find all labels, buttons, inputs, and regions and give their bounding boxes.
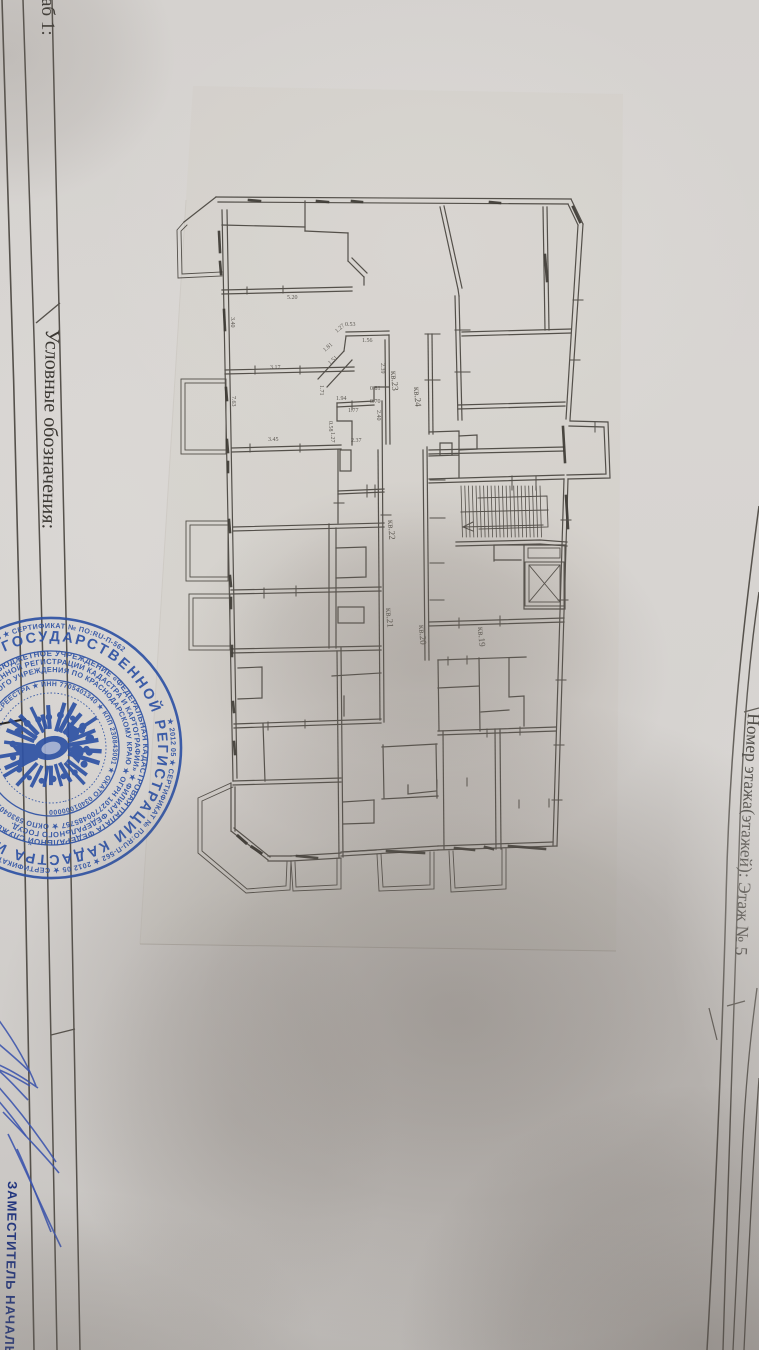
svg-text:1.27: 1.27 <box>329 432 335 443</box>
svg-text:0.53: 0.53 <box>345 322 356 328</box>
svg-text:3.40: 3.40 <box>229 317 235 328</box>
svg-text:1.71: 1.71 <box>318 385 324 396</box>
svg-text:кв.23: кв.23 <box>389 370 400 391</box>
svg-text:7.63: 7.63 <box>230 396 236 407</box>
svg-text:0.58: 0.58 <box>327 421 333 432</box>
svg-text:2.39: 2.39 <box>379 363 385 374</box>
svg-text:1.77: 1.77 <box>348 408 359 414</box>
svg-text:0.70: 0.70 <box>370 399 381 405</box>
svg-text:0.81: 0.81 <box>370 386 381 392</box>
svg-text:2.37: 2.37 <box>351 438 362 444</box>
svg-text:2.40: 2.40 <box>375 410 381 421</box>
svg-text:1.94: 1.94 <box>336 396 347 402</box>
svg-text:3.17: 3.17 <box>270 365 281 371</box>
svg-text:Условные обозначения:: Условные обозначения: <box>38 329 63 529</box>
svg-text:5.20: 5.20 <box>287 295 298 301</box>
svg-text:кв.24: кв.24 <box>412 386 423 407</box>
svg-text:3.45: 3.45 <box>268 437 279 443</box>
svg-text:1.56: 1.56 <box>362 338 373 344</box>
